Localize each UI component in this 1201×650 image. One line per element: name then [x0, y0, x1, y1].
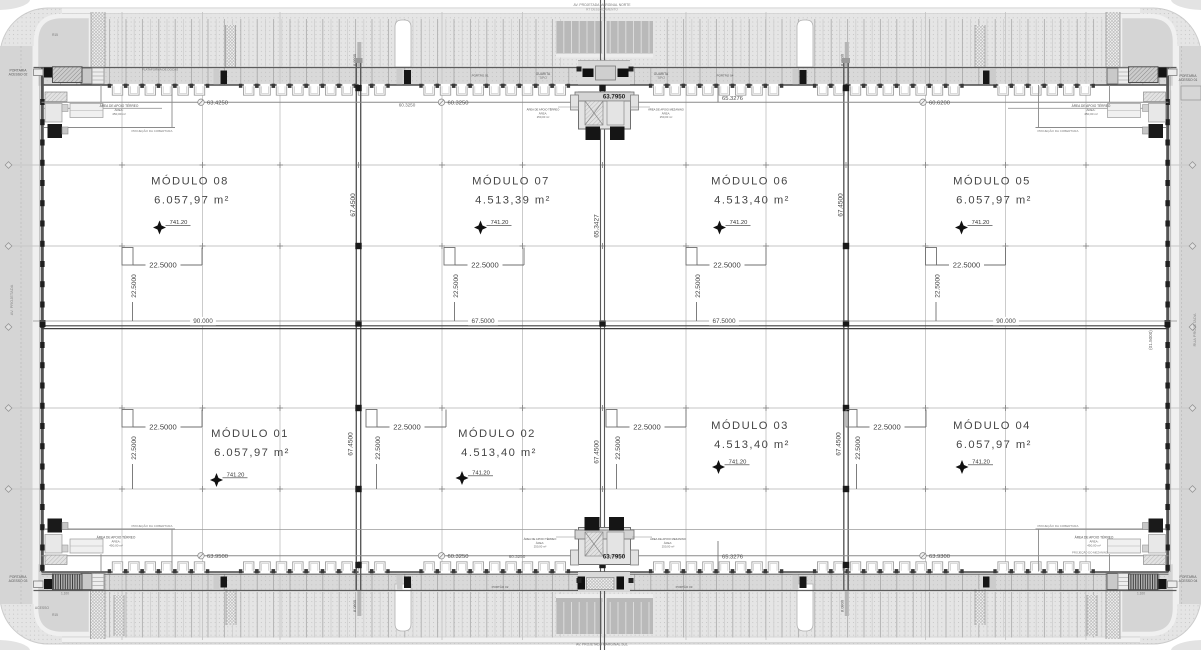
svg-text:22.5000: 22.5000 [633, 422, 660, 431]
svg-text:PROJEÇÃO DO MEZANINO: PROJEÇÃO DO MEZANINO [1072, 550, 1109, 555]
svg-text:AV. PROJETADA MARGINAL NORTE: AV. PROJETADA MARGINAL NORTE [573, 3, 631, 7]
svg-text:4.513,40 m²: 4.513,40 m² [714, 195, 790, 207]
svg-text:22.5000: 22.5000 [393, 422, 420, 431]
svg-text:60.6200: 60.6200 [929, 100, 950, 106]
svg-text:TIPO: TIPO [539, 76, 547, 80]
svg-text:250,00 m²: 250,00 m² [660, 115, 673, 119]
svg-text:MÓDULO 06: MÓDULO 06 [711, 175, 789, 188]
svg-text:65.3276: 65.3276 [722, 96, 743, 102]
svg-text:67.5000: 67.5000 [471, 318, 495, 325]
svg-text:MÓDULO 03: MÓDULO 03 [711, 419, 789, 432]
svg-text:(01.5000): (01.5000) [1148, 330, 1153, 350]
svg-text:TIPO: TIPO [657, 76, 665, 80]
svg-text:PORTÃO 04: PORTÃO 04 [717, 73, 734, 78]
svg-text:63.9500: 63.9500 [207, 554, 228, 560]
svg-text:67.4500: 67.4500 [350, 193, 357, 217]
svg-text:90.000: 90.000 [193, 318, 213, 325]
svg-text:PROJEÇÃO DA COBERTURA: PROJEÇÃO DA COBERTURA [132, 128, 173, 133]
svg-text:MÓDULO 07: MÓDULO 07 [472, 175, 550, 188]
svg-text:R15: R15 [52, 33, 58, 37]
svg-text:60.3250: 60.3250 [509, 554, 526, 559]
svg-text:1.100: 1.100 [1137, 592, 1145, 596]
svg-text:6.057,97 m²: 6.057,97 m² [214, 447, 290, 459]
svg-text:450,00 m²: 450,00 m² [109, 544, 123, 548]
svg-text:60.3250: 60.3250 [448, 100, 469, 106]
svg-text:ACESSO 02: ACESSO 02 [9, 73, 28, 77]
svg-text:22.5000: 22.5000 [375, 436, 382, 460]
svg-text:PORTÃO 01: PORTÃO 01 [472, 73, 489, 78]
svg-text:67.4500: 67.4500 [594, 440, 601, 464]
svg-text:ACESSO 04: ACESSO 04 [1179, 579, 1198, 583]
svg-text:6.057,97 m²: 6.057,97 m² [956, 439, 1032, 451]
svg-text:R15: R15 [52, 613, 58, 617]
svg-text:450,00 m²: 450,00 m² [1084, 112, 1098, 116]
svg-text:RT DESLOCAMENTO: RT DESLOCAMENTO [586, 8, 618, 12]
svg-text:MÓDULO 08: MÓDULO 08 [151, 175, 229, 188]
svg-text:PORTÃO 03: PORTÃO 03 [676, 584, 693, 589]
svg-text:22.5000: 22.5000 [953, 260, 980, 269]
svg-text:1.100: 1.100 [61, 592, 69, 596]
svg-text:ACESSO 03: ACESSO 03 [9, 579, 28, 583]
svg-text:67.4500: 67.4500 [836, 432, 843, 456]
svg-text:22.5000: 22.5000 [149, 422, 176, 431]
svg-text:67.4500: 67.4500 [348, 432, 355, 456]
svg-text:22.5000: 22.5000 [615, 436, 622, 460]
svg-text:PROJEÇÃO DA COBERTURA: PROJEÇÃO DA COBERTURA [1038, 523, 1079, 528]
svg-text:PROJEÇÃO DA COBERTURA: PROJEÇÃO DA COBERTURA [132, 523, 173, 528]
svg-text:MÓDULO 02: MÓDULO 02 [458, 427, 536, 440]
svg-text:22.5000: 22.5000 [131, 274, 138, 298]
svg-text:90.000: 90.000 [996, 318, 1016, 325]
svg-text:450,00 m²: 450,00 m² [112, 112, 126, 116]
svg-text:4.513,39 m²: 4.513,39 m² [475, 195, 551, 207]
svg-text:MÓDULO 04: MÓDULO 04 [953, 419, 1031, 432]
svg-text:8.0800: 8.0800 [352, 599, 357, 612]
svg-text:8.0800: 8.0800 [840, 599, 845, 612]
svg-text:AV. PROJETADA MARGINAL SUL: AV. PROJETADA MARGINAL SUL [576, 643, 628, 647]
svg-text:63.7950: 63.7950 [603, 554, 626, 561]
svg-text:22.5000: 22.5000 [873, 422, 900, 431]
svg-text:67.4500: 67.4500 [838, 193, 845, 217]
svg-text:MÓDULO 05: MÓDULO 05 [953, 175, 1031, 188]
svg-text:22.5000: 22.5000 [471, 260, 498, 269]
svg-text:22.5000: 22.5000 [453, 274, 460, 298]
svg-text:250,00 m²: 250,00 m² [537, 115, 550, 119]
svg-text:RUA PROJETADA: RUA PROJETADA [1192, 313, 1197, 346]
svg-text:22.5000: 22.5000 [149, 260, 176, 269]
svg-text:ACESSO 01: ACESSO 01 [1179, 78, 1198, 82]
svg-text:63.4250: 63.4250 [207, 100, 228, 106]
svg-text:60.3250: 60.3250 [399, 103, 416, 108]
svg-text:PROJEÇÃO DA COBERTURA: PROJEÇÃO DA COBERTURA [1038, 128, 1079, 133]
svg-text:250,00 m²: 250,00 m² [534, 545, 547, 549]
svg-text:PORTÃO 02: PORTÃO 02 [492, 584, 509, 589]
svg-text:65.3276: 65.3276 [722, 555, 743, 561]
svg-text:AV. PROJETADA: AV. PROJETADA [9, 284, 14, 315]
svg-text:6.057,97 m²: 6.057,97 m² [956, 195, 1032, 207]
svg-text:22.5000: 22.5000 [695, 274, 702, 298]
svg-text:67.5000: 67.5000 [712, 318, 736, 325]
svg-text:250,00 m²: 250,00 m² [662, 545, 675, 549]
svg-text:22.5000: 22.5000 [934, 274, 941, 298]
svg-text:22.5000: 22.5000 [713, 260, 740, 269]
svg-text:4.513,40 m²: 4.513,40 m² [714, 439, 790, 451]
svg-text:63.7950: 63.7950 [603, 94, 626, 101]
svg-text:4.513,40 m²: 4.513,40 m² [461, 447, 537, 459]
svg-text:6.057,97 m²: 6.057,97 m² [154, 195, 230, 207]
svg-text:65.3427: 65.3427 [594, 214, 601, 238]
svg-text:PLATAFORMA DE DOCAS: PLATAFORMA DE DOCAS [142, 68, 178, 72]
svg-text:63.9300: 63.9300 [929, 554, 950, 560]
svg-text:ACESSO: ACESSO [35, 606, 49, 610]
svg-text:450,00 m²: 450,00 m² [1087, 544, 1101, 548]
svg-text:MÓDULO 01: MÓDULO 01 [211, 427, 289, 440]
svg-text:60.3250: 60.3250 [448, 554, 469, 560]
svg-text:22.5000: 22.5000 [855, 436, 862, 460]
svg-text:22.5000: 22.5000 [131, 436, 138, 460]
